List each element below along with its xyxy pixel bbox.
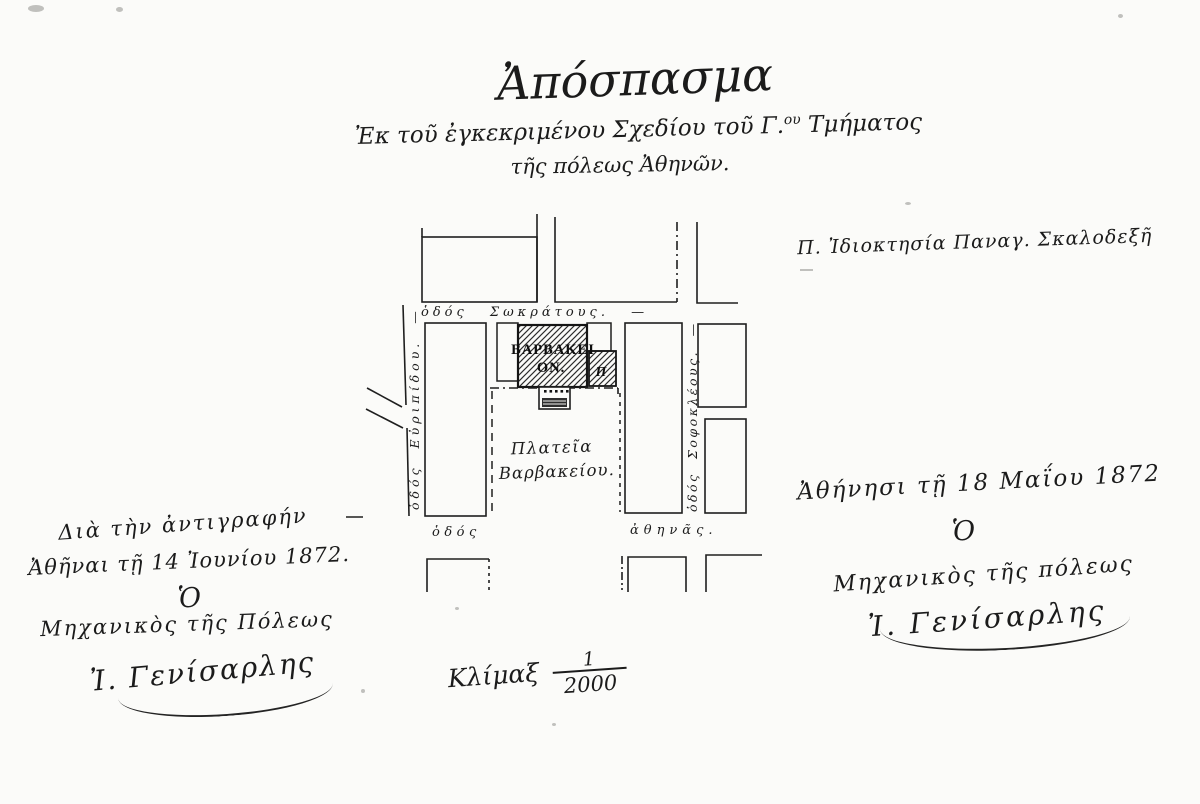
building-label-line2: ΟΝ. (537, 360, 565, 376)
street-label-sokratous: ὁδός Σωκράτους. — (421, 305, 648, 320)
right-note-article: Ὁ (951, 515, 976, 547)
left-note-article: Ὁ (177, 582, 202, 615)
bottom-blocks (427, 555, 762, 592)
street-label-athinas-odos: ὁδός (432, 525, 481, 540)
left-note-article-text: Ὁ (177, 582, 202, 615)
scale-denominator: 2000 (553, 667, 628, 698)
varvakeion-building: ΒΑΡΒΑΚΕΙ ΟΝ. Π (490, 323, 618, 409)
scale-fraction: 12000 (552, 649, 628, 698)
street-label-athinas-name: ἀθηνᾶς. (630, 523, 718, 538)
top-blocks (422, 214, 738, 303)
right-note-article-text: Ὁ (951, 515, 976, 547)
plot-pi-label: Π (595, 365, 608, 380)
scale-label: Κλίμαξ (447, 658, 540, 693)
street-evripidou-lines (346, 305, 409, 517)
plateia-label-line2: Βαρβακείου. (498, 460, 616, 483)
building-label-line1: ΒΑΡΒΑΚΕΙ (511, 342, 595, 358)
plateia-label-line1: Πλατεῖα (509, 437, 593, 459)
portico-structure (539, 387, 570, 409)
street-label-sofokleous: ὁδός Σοφοκλέους. — (685, 321, 700, 512)
street-label-evripidou: ὁδός Εὐριπίδου. — (407, 307, 422, 510)
plateia-label: Πλατεῖα Βαρβακείου. (498, 437, 616, 483)
